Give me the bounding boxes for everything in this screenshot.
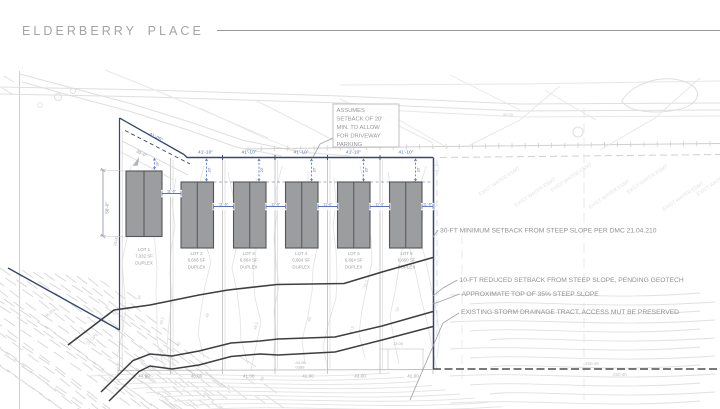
svg-text:EXIST WATER ESMT: EXIST WATER ESMT	[514, 177, 558, 209]
svg-text:41.00: 41.00	[302, 374, 314, 379]
svg-text:41'-10": 41'-10"	[294, 150, 309, 156]
svg-text:6,666 SF: 6,666 SF	[188, 258, 206, 263]
svg-text:48.5: 48.5	[252, 321, 259, 331]
svg-text:DUPLEX: DUPLEX	[345, 264, 363, 269]
svg-text:11'-6": 11'-6"	[423, 203, 433, 207]
svg-text:DUPLEX: DUPLEX	[135, 260, 153, 265]
svg-text:11'-6": 11'-6"	[219, 203, 229, 207]
svg-text:11'-6": 11'-6"	[375, 203, 385, 207]
svg-text:LOT 5: LOT 5	[348, 251, 361, 256]
svg-text:MIN. TO ALLOW: MIN. TO ALLOW	[337, 125, 381, 131]
svg-text:20': 20'	[313, 167, 317, 172]
svg-text:49: 49	[204, 312, 210, 319]
svg-text:25.00: 25.00	[113, 236, 119, 246]
svg-text:PARKING: PARKING	[337, 142, 363, 148]
svg-text:41.00: 41.00	[407, 374, 419, 379]
svg-text:20': 20'	[208, 167, 212, 172]
svg-text:EXIST WATER ESMT: EXIST WATER ESMT	[550, 162, 594, 194]
svg-text:30'-0": 30'-0"	[136, 148, 149, 158]
svg-text:250.46: 250.46	[585, 361, 599, 366]
svg-text:6,664 SF: 6,664 SF	[345, 258, 363, 263]
svg-text:43.00: 43.00	[354, 374, 366, 379]
svg-text:41'-10": 41'-10"	[242, 150, 257, 156]
svg-text:250.46: 250.46	[613, 372, 627, 377]
svg-text:10-FT REDUCED SETBACK FROM STE: 10-FT REDUCED SETBACK FROM STEEP SLOPE, …	[460, 277, 684, 284]
svg-text:LOT 2: LOT 2	[190, 251, 203, 256]
svg-text:49.5: 49.5	[158, 316, 165, 326]
svg-text:30-FT MINIMUM SETBACK FROM STE: 30-FT MINIMUM SETBACK FROM STEEP SLOPE P…	[440, 228, 657, 235]
svg-text:EXIST WATER ESMT: EXIST WATER ESMT	[588, 179, 632, 211]
svg-text:6,664 SF: 6,664 SF	[240, 258, 258, 263]
svg-text:50'-0": 50'-0"	[105, 202, 110, 214]
svg-text:DUPLEX: DUPLEX	[292, 264, 310, 269]
svg-text:41'-10": 41'-10"	[346, 150, 361, 156]
svg-text:41.00: 41.00	[243, 374, 255, 379]
svg-text:11'-6": 11'-6"	[271, 203, 281, 207]
svg-text:41'-10": 41'-10"	[198, 150, 213, 156]
svg-text:7,332 SF: 7,332 SF	[135, 254, 153, 259]
svg-text:LOT 1: LOT 1	[138, 247, 151, 252]
svg-text:LOT 3: LOT 3	[243, 251, 256, 256]
svg-text:LOT 4: LOT 4	[295, 251, 308, 256]
svg-text:EXISTING STORM DRAINAGE TRACT,: EXISTING STORM DRAINAGE TRACT, ACCESS MU…	[461, 309, 679, 316]
svg-text:20': 20'	[156, 161, 160, 166]
svg-text:46: 46	[136, 294, 142, 301]
svg-text:6,664 SF: 6,664 SF	[292, 258, 310, 263]
svg-text:41'-05": 41'-05"	[149, 131, 164, 142]
svg-text:50: 50	[394, 306, 400, 313]
svg-text:40: 40	[175, 340, 182, 347]
svg-text:50.00: 50.00	[503, 112, 514, 117]
svg-text:45.00: 45.00	[191, 374, 203, 379]
svg-text:EXIST WATER ESMT: EXIST WATER ESMT	[478, 166, 522, 198]
svg-text:APPROXIMATE TOP OF 35% STEEP S: APPROXIMATE TOP OF 35% STEEP SLOPE	[462, 291, 600, 298]
svg-text:6,660 SF: 6,660 SF	[398, 258, 416, 263]
svg-text:0388: 0388	[296, 365, 306, 370]
svg-text:DUPLEX: DUPLEX	[188, 264, 206, 269]
svg-text:20': 20'	[365, 167, 369, 172]
svg-text:LOT 6: LOT 6	[400, 251, 413, 256]
svg-text:SETBACK OF 20': SETBACK OF 20'	[337, 117, 383, 123]
svg-text:FOR DRIVEWAY: FOR DRIVEWAY	[337, 134, 381, 140]
svg-text:41'-10": 41'-10"	[399, 150, 414, 156]
svg-text:EXIST WATER ESMT: EXIST WATER ESMT	[626, 164, 670, 196]
svg-text:11'-6": 11'-6"	[323, 203, 333, 207]
svg-text:48: 48	[306, 316, 312, 323]
svg-text:44.90: 44.90	[138, 374, 150, 379]
svg-text:ASSUMES: ASSUMES	[337, 108, 365, 114]
svg-text:20': 20'	[260, 167, 264, 172]
svg-text:13.00: 13.00	[393, 341, 404, 346]
svg-text:DUPLEX: DUPLEX	[240, 264, 258, 269]
svg-text:20': 20'	[417, 167, 421, 172]
svg-text:11'-6": 11'-6"	[167, 190, 177, 194]
svg-text:39: 39	[259, 375, 266, 382]
